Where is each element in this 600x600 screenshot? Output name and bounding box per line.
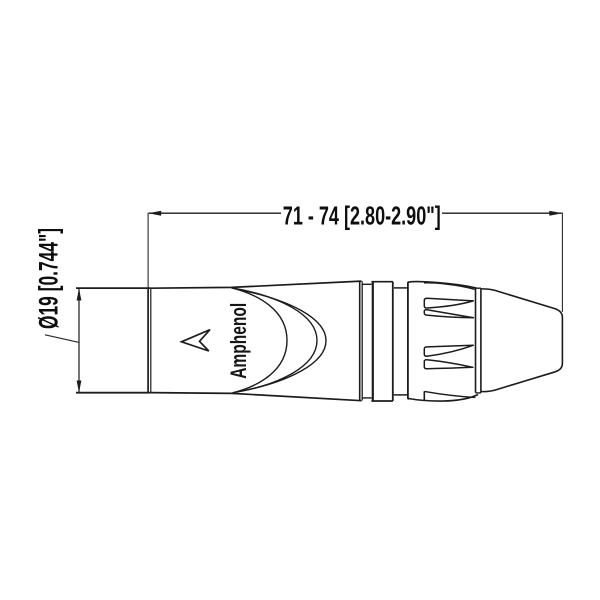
svg-text:Ø19 [0.744"]: Ø19 [0.744"] (34, 228, 64, 329)
svg-text:Amphenol: Amphenol (226, 303, 251, 379)
svg-text:71 - 74 [2.80-2.90"]: 71 - 74 [2.80-2.90"] (283, 201, 441, 231)
